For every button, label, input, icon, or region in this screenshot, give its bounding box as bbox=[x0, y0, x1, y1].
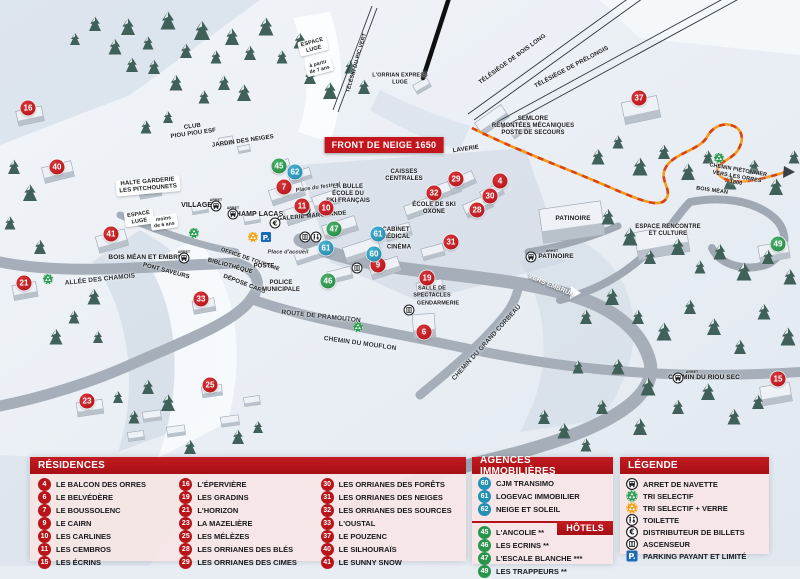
agences-list: 60 CJM TRANSIMO 61 LOGEVAC IMMOBILIER 62… bbox=[472, 474, 613, 518]
svg-text:P.: P. bbox=[263, 233, 270, 242]
residence-list-item: 9 LE CAIRN bbox=[38, 517, 179, 530]
residence-name: LES CEMBROS bbox=[56, 545, 111, 554]
residence-list-item: 10 LES CARLINES bbox=[38, 530, 179, 543]
map-marker: 29 bbox=[449, 172, 464, 187]
residence-list-item: 21 L'HORIZON bbox=[179, 504, 320, 517]
residences-panel: RÉSIDENCES 4 LE BALCON DES ORRES 6 LE BE… bbox=[30, 457, 466, 561]
residence-number-badge: 29 bbox=[179, 556, 192, 569]
bus-icon bbox=[211, 201, 222, 212]
residence-name: LE CAIRN bbox=[56, 519, 91, 528]
parking-icon: P. bbox=[626, 550, 638, 562]
legende-list-item: TRI SELECTIF + VERRE bbox=[626, 502, 763, 514]
residence-number-badge: 4 bbox=[38, 478, 51, 491]
recycle-green-icon bbox=[714, 153, 725, 164]
bus-icon bbox=[228, 209, 239, 220]
euro-icon: € bbox=[626, 526, 638, 538]
hotels-divider: HÔTELS bbox=[472, 521, 613, 523]
map-label: CAISSES CENTRALES bbox=[385, 169, 423, 183]
map-marker: 15 bbox=[771, 372, 786, 387]
map-marker: 28 bbox=[470, 203, 485, 218]
agence-list-item: 61 LOGEVAC IMMOBILIER bbox=[478, 490, 607, 503]
toilet-icon bbox=[626, 514, 638, 526]
map-label: Place d'accueil bbox=[268, 250, 309, 257]
legende-list-item: € DISTRIBUTEUR DE BILLETS bbox=[626, 526, 763, 538]
residence-number-badge: 9 bbox=[38, 517, 51, 530]
residence-number-badge: 30 bbox=[321, 478, 334, 491]
legende-list-item: TOILETTE bbox=[626, 514, 763, 526]
residence-number-badge: 40 bbox=[321, 543, 334, 556]
recycle-green-icon bbox=[626, 490, 638, 502]
elevator-icon bbox=[404, 305, 415, 316]
residence-name: LE BOUSSOLENC bbox=[56, 506, 121, 515]
residence-name: LES ORRIANES DES BLÉS bbox=[197, 545, 293, 554]
residences-list: 4 LE BALCON DES ORRES 6 LE BELVÉDÈRE 7 L… bbox=[30, 474, 466, 566]
residence-list-item: 7 LE BOUSSOLENC bbox=[38, 504, 179, 517]
map-marker: 19 bbox=[420, 271, 435, 286]
legende-list-item: ARRET DE NAVETTE bbox=[626, 478, 763, 490]
map-label: SALLE DE SPECTACLES bbox=[413, 285, 451, 298]
map-marker: 23 bbox=[80, 394, 95, 409]
residence-list-item: 37 LE POUZENC bbox=[321, 530, 462, 543]
elevator-icon bbox=[352, 263, 363, 274]
recycle-green-icon bbox=[189, 228, 200, 239]
map-label: POLICE MUNICIPALE bbox=[262, 280, 300, 294]
residence-list-item: 4 LE BALCON DES ORRES bbox=[38, 478, 179, 491]
map-marker: 49 bbox=[771, 237, 786, 252]
residence-list-item: 33 L'OUSTAL bbox=[321, 517, 462, 530]
resort-map: P.€ ESPACE LUGEà partir de 7 ansTÉLÉSKI … bbox=[0, 0, 800, 566]
residence-name: LE BELVÉDÈRE bbox=[56, 493, 113, 502]
agences-panel-header: AGENCES IMMOBILIÈRES bbox=[472, 457, 613, 474]
residence-number-badge: 7 bbox=[38, 504, 51, 517]
map-marker: 10 bbox=[319, 201, 334, 216]
residence-name: LES ORRIANES DES NEIGES bbox=[339, 493, 443, 502]
elevator-icon bbox=[626, 538, 638, 550]
svg-text:€: € bbox=[272, 219, 278, 227]
map-label: ESPACE RENCONTRE ET CULTURE bbox=[635, 224, 701, 238]
map-label: PATINOIRE bbox=[555, 215, 590, 223]
hotel-number-badge: 45 bbox=[478, 526, 491, 539]
residence-number-badge: 32 bbox=[321, 504, 334, 517]
map-marker: 60 bbox=[367, 247, 382, 262]
residence-number-badge: 31 bbox=[321, 491, 334, 504]
recycle-green-icon bbox=[43, 274, 54, 285]
map-marker: 30 bbox=[483, 189, 498, 204]
hotels-panel-header: HÔTELS bbox=[557, 521, 613, 535]
map-label: ARRET bbox=[546, 249, 559, 253]
agence-name: NEIGE ET SOLEIL bbox=[496, 505, 560, 514]
map-label: ARRET bbox=[686, 370, 699, 374]
hotel-number-badge: 46 bbox=[478, 539, 491, 552]
map-marker: 47 bbox=[327, 222, 342, 237]
residence-name: LES CARLINES bbox=[56, 532, 111, 541]
residence-number-badge: 28 bbox=[179, 543, 192, 556]
map-label: POSTE bbox=[254, 263, 275, 270]
bus-icon bbox=[626, 478, 638, 490]
residence-name: LES MÉLÈZES bbox=[197, 532, 249, 541]
map-marker: 46 bbox=[321, 274, 336, 289]
residence-number-badge: 19 bbox=[179, 491, 192, 504]
front-de-neige-banner: FRONT DE NEIGE 1650 bbox=[325, 137, 444, 153]
residence-name: LE SILHOURAÏS bbox=[339, 545, 397, 554]
map-marker: 37 bbox=[632, 91, 647, 106]
residence-number-badge: 15 bbox=[38, 556, 51, 569]
map-label: CINÉMA bbox=[387, 244, 411, 251]
map-marker: 21 bbox=[17, 276, 32, 291]
svg-text:€: € bbox=[628, 528, 634, 537]
recycle-green-icon bbox=[353, 322, 364, 333]
residence-list-item: 32 LES ORRIANES DES SOURCES bbox=[321, 504, 462, 517]
map-marker: 33 bbox=[194, 292, 209, 307]
agence-list-item: 60 CJM TRANSIMO bbox=[478, 477, 607, 490]
legende-list: ARRET DE NAVETTE TRI SELECTIF TRI SELECT… bbox=[620, 474, 769, 556]
residence-list-item: 6 LE BELVÉDÈRE bbox=[38, 491, 179, 504]
map-marker: 62 bbox=[288, 165, 303, 180]
elevator-icon bbox=[300, 232, 311, 243]
hotel-number-badge: 49 bbox=[478, 565, 491, 578]
parking-icon: P. bbox=[261, 232, 272, 243]
residence-list-item: 15 LES ÉCRINS bbox=[38, 556, 179, 569]
hotel-list-item: 46 LES ECRINS ** bbox=[478, 539, 607, 552]
residence-list-item: 23 LA MAZELIÈRE bbox=[179, 517, 320, 530]
hotel-name: LES TRAPPEURS ** bbox=[496, 567, 567, 576]
map-marker: 25 bbox=[203, 378, 218, 393]
bus-icon bbox=[526, 252, 537, 263]
residence-list-item: 11 LES CEMBROS bbox=[38, 543, 179, 556]
residence-number-badge: 33 bbox=[321, 517, 334, 530]
residence-number-badge: 16 bbox=[179, 478, 192, 491]
agences-hotels-panel: AGENCES IMMOBILIÈRES 60 CJM TRANSIMO 61 … bbox=[472, 457, 613, 564]
legend-label: TRI SELECTIF bbox=[643, 492, 693, 501]
map-marker: 32 bbox=[427, 186, 442, 201]
residence-number-badge: 11 bbox=[38, 543, 51, 556]
residence-list-item: 31 LES ORRIANES DES NEIGES bbox=[321, 491, 462, 504]
hotel-number-badge: 47 bbox=[478, 552, 491, 565]
agence-number-badge: 60 bbox=[478, 477, 491, 490]
residence-number-badge: 10 bbox=[38, 530, 51, 543]
residence-list-item: 28 LES ORRIANES DES BLÉS bbox=[179, 543, 320, 556]
agence-number-badge: 62 bbox=[478, 503, 491, 516]
legend-label: ASCENSEUR bbox=[643, 540, 690, 549]
legende-panel: LÉGENDE ARRET DE NAVETTE TRI SELECTIF TR… bbox=[620, 457, 769, 554]
residence-name: LE POUZENC bbox=[339, 532, 387, 541]
map-label: CABINET MÉDICAL bbox=[382, 227, 410, 241]
euro-icon: € bbox=[270, 218, 281, 229]
map-marker: 16 bbox=[21, 101, 36, 116]
legend-label: TOILETTE bbox=[643, 516, 679, 525]
map-label: L'ORRIAN EXPRESS LUGE bbox=[372, 72, 427, 85]
toilet-icon bbox=[311, 232, 322, 243]
legende-list-item: ASCENSEUR bbox=[626, 538, 763, 550]
residence-number-badge: 37 bbox=[321, 530, 334, 543]
legende-list-item: P. PARKING PAYANT ET LIMITÉ bbox=[626, 550, 763, 562]
hotel-list-item: 47 L'ESCALE BLANCHE *** bbox=[478, 552, 607, 565]
residence-list-item: 19 LES GRADINS bbox=[179, 491, 320, 504]
agence-number-badge: 61 bbox=[478, 490, 491, 503]
map-marker: 61 bbox=[371, 227, 386, 242]
residence-name: LES GRADINS bbox=[197, 493, 248, 502]
agence-name: LOGEVAC IMMOBILIER bbox=[496, 492, 580, 501]
map-marker: 45 bbox=[272, 159, 287, 174]
residence-number-badge: 41 bbox=[321, 556, 334, 569]
hotel-name: L'ESCALE BLANCHE *** bbox=[496, 554, 582, 563]
map-marker: 61 bbox=[319, 241, 334, 256]
residence-list-item: 25 LES MÉLÈZES bbox=[179, 530, 320, 543]
hotel-list-item: 49 LES TRAPPEURS ** bbox=[478, 565, 607, 578]
map-marker: 31 bbox=[444, 235, 459, 250]
agence-list-item: 62 NEIGE ET SOLEIL bbox=[478, 503, 607, 516]
residences-panel-header: RÉSIDENCES bbox=[30, 457, 466, 474]
residence-list-item: 40 LE SILHOURAÏS bbox=[321, 543, 462, 556]
map-label: BOIS MÉAN ET EMBRUN bbox=[108, 254, 187, 262]
residence-list-item: 30 LES ORRIANES DES FORÊTS bbox=[321, 478, 462, 491]
residence-number-badge: 21 bbox=[179, 504, 192, 517]
map-marker: 41 bbox=[104, 227, 119, 242]
legend-label: TRI SELECTIF + VERRE bbox=[643, 504, 728, 513]
map-marker: 11 bbox=[295, 199, 310, 214]
residence-name: LES ORRIANES DES SOURCES bbox=[339, 506, 452, 515]
residence-number-badge: 25 bbox=[179, 530, 192, 543]
hotel-name: L'ANCOLIE ** bbox=[496, 528, 544, 537]
recycle-yellow-icon bbox=[248, 232, 259, 243]
map-marker: 40 bbox=[50, 160, 65, 175]
residence-number-badge: 6 bbox=[38, 491, 51, 504]
agence-name: CJM TRANSIMO bbox=[496, 479, 554, 488]
legende-list-item: TRI SELECTIF bbox=[626, 490, 763, 502]
residence-list-item: 16 L'ÉPERVIÈRE bbox=[179, 478, 320, 491]
residence-name: L'OUSTAL bbox=[339, 519, 376, 528]
map-label: ÉCOLE DE SKI OXONE bbox=[412, 202, 456, 216]
bus-icon bbox=[179, 253, 190, 264]
residence-name: LE BALCON DES ORRES bbox=[56, 480, 146, 489]
recycle-yellow-icon bbox=[626, 502, 638, 514]
residence-list-item: 41 LE SUNNY SNOW bbox=[321, 556, 462, 569]
map-marker: 7 bbox=[277, 180, 292, 195]
map-label: PATINOIRE bbox=[538, 253, 573, 261]
residence-name: LA MAZELIÈRE bbox=[197, 519, 252, 528]
residence-list-item: 29 LES ORRIANES DES CIMES bbox=[179, 556, 320, 569]
residence-number-badge: 23 bbox=[179, 517, 192, 530]
map-label: SEMLORE REMONTÉES MÉCANIQUES POSTE DE SE… bbox=[492, 116, 574, 138]
legend-label: DISTRIBUTEUR DE BILLETS bbox=[643, 528, 745, 537]
svg-text:P.: P. bbox=[628, 552, 635, 561]
bus-icon bbox=[673, 373, 684, 384]
residence-name: LES ORRIANES DES FORÊTS bbox=[339, 480, 445, 489]
residence-name: L'HORIZON bbox=[197, 506, 238, 515]
legende-panel-header: LÉGENDE bbox=[620, 457, 769, 474]
map-marker: 6 bbox=[417, 325, 432, 340]
residence-name: L'ÉPERVIÈRE bbox=[197, 480, 246, 489]
legend-label: PARKING PAYANT ET LIMITÉ bbox=[643, 552, 746, 561]
hotel-name: LES ECRINS ** bbox=[496, 541, 549, 550]
map-marker: 4 bbox=[493, 174, 508, 189]
map-label: GENDARMERIE bbox=[417, 301, 459, 308]
legend-label: ARRET DE NAVETTE bbox=[643, 480, 718, 489]
